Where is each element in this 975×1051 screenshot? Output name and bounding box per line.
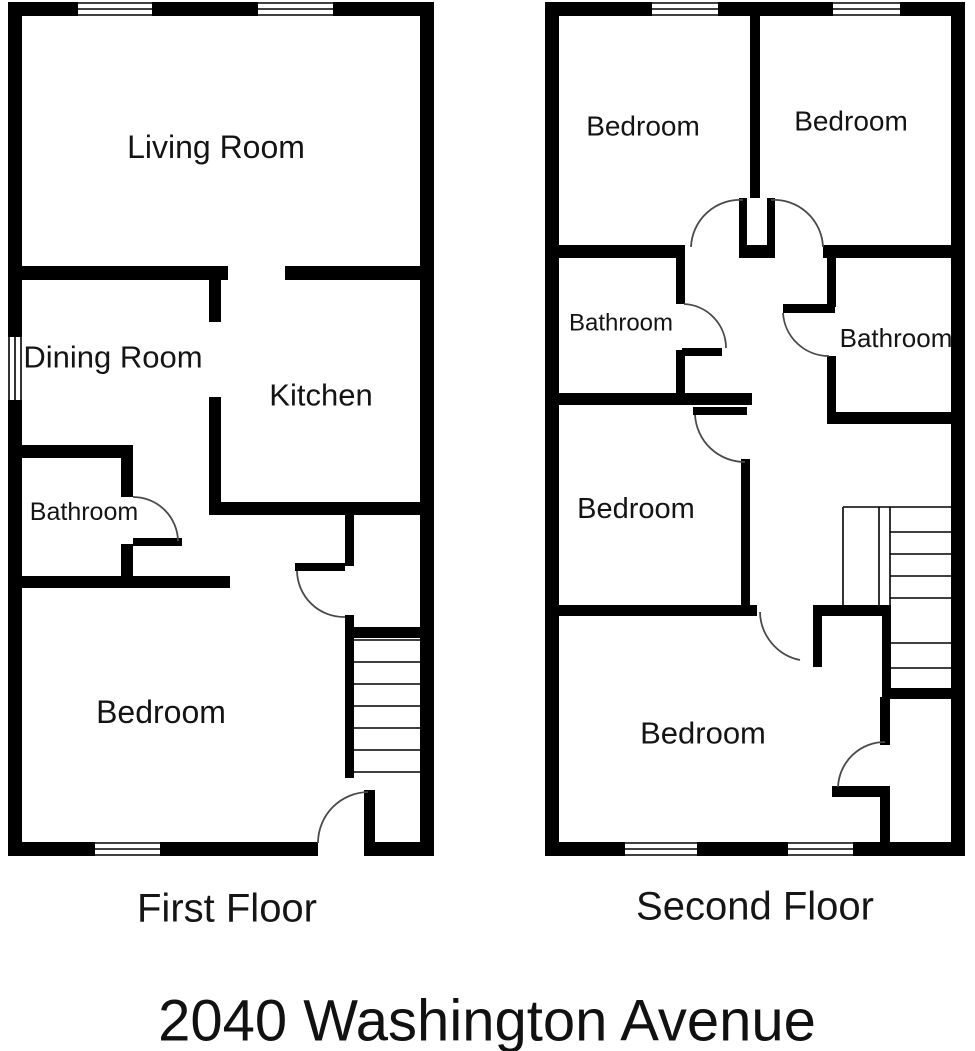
wall	[823, 245, 965, 258]
wall	[813, 605, 891, 616]
wall	[545, 605, 757, 616]
wall	[8, 266, 228, 280]
wall	[295, 563, 345, 571]
second-floor-caption: Second Floor	[636, 885, 874, 930]
room-label: Bathroom	[30, 498, 138, 526]
door-swing-arc	[133, 497, 178, 541]
room-label: Living Room	[127, 129, 305, 165]
door-swing-arc	[760, 612, 800, 660]
wall	[8, 2, 434, 16]
wall	[827, 356, 836, 416]
wall	[545, 393, 752, 405]
wall	[121, 445, 133, 497]
door-swing-arc	[695, 415, 745, 462]
room-label: Bedroom	[96, 694, 226, 730]
room-label: Bedroom	[586, 111, 700, 142]
door-swing-arc	[297, 571, 345, 617]
door-swing-arc	[684, 304, 726, 348]
wall	[693, 407, 747, 415]
room-label: Bedroom	[794, 106, 908, 137]
door-swing-arc	[838, 742, 885, 787]
wall	[364, 790, 375, 845]
door-swing-arc	[783, 313, 829, 356]
wall	[345, 512, 354, 566]
wall	[813, 605, 822, 667]
wall	[951, 2, 965, 856]
room-label: Kitchen	[269, 378, 372, 413]
wall	[209, 397, 221, 507]
wall	[739, 245, 775, 258]
room-label: Bedroom	[577, 493, 695, 525]
wall	[8, 842, 318, 856]
wall	[888, 688, 965, 699]
second-floor-plan: BedroomBedroomBathroomBathroomBedroomBed…	[545, 2, 965, 856]
wall	[209, 278, 221, 322]
door-swing-arc	[318, 792, 368, 843]
door-swing-arc	[691, 200, 743, 247]
wall	[545, 842, 965, 856]
wall	[420, 2, 434, 856]
wall	[545, 2, 559, 856]
wall	[285, 266, 434, 280]
wall	[880, 797, 890, 846]
wall	[783, 304, 835, 313]
wall	[750, 2, 760, 198]
wall	[676, 350, 685, 400]
door-swing-arc	[771, 200, 823, 247]
wall	[882, 605, 891, 697]
wall	[827, 250, 836, 307]
wall	[209, 502, 434, 515]
wall	[8, 2, 22, 856]
first-floor-caption: First Floor	[137, 887, 317, 932]
wall	[345, 615, 354, 778]
first-floor-plan: Living RoomDining RoomKitchenBathroomBed…	[8, 2, 434, 856]
wall	[682, 348, 722, 356]
wall	[739, 198, 747, 247]
room-label: Bathroom	[840, 323, 953, 353]
wall	[676, 258, 685, 304]
wall	[133, 538, 182, 546]
wall	[345, 627, 434, 638]
wall	[767, 198, 775, 247]
wall	[832, 786, 890, 797]
address-caption: 2040 Washington Avenue	[158, 988, 816, 1051]
wall	[741, 459, 750, 610]
floor-plan-page: Living RoomDining RoomKitchenBathroomBed…	[0, 0, 975, 1051]
wall	[8, 445, 133, 458]
wall	[827, 412, 965, 424]
room-label: Bathroom	[569, 310, 673, 337]
wall	[8, 576, 230, 588]
room-label: Dining Room	[23, 340, 202, 375]
room-label: Bedroom	[640, 716, 766, 751]
wall	[545, 245, 685, 258]
wall	[880, 697, 890, 745]
